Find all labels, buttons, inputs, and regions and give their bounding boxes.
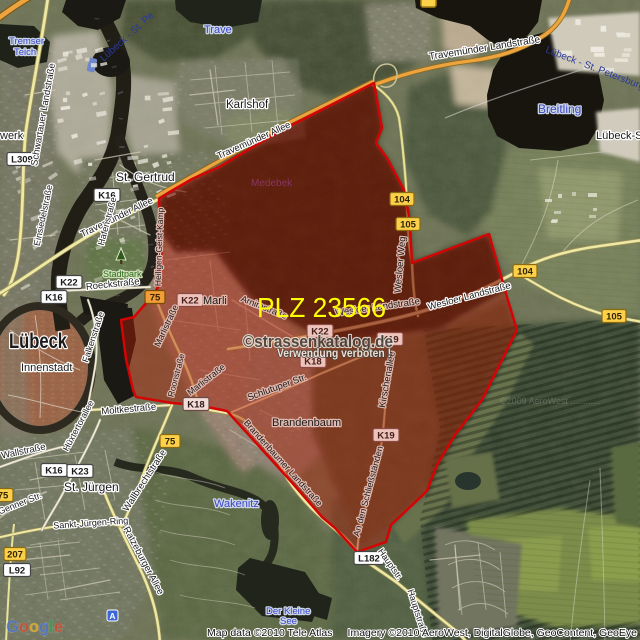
- svg-text:Lübeck-S: Lübeck-S: [596, 130, 640, 142]
- svg-text:e: e: [54, 618, 63, 636]
- svg-text:K16: K16: [45, 292, 62, 303]
- svg-text:l: l: [49, 618, 54, 636]
- svg-text:St. Jürgen: St. Jürgen: [64, 480, 119, 494]
- svg-text:St. Gertrud: St. Gertrud: [116, 170, 175, 184]
- svg-text:K23: K23: [71, 466, 88, 477]
- svg-text:g: g: [39, 618, 49, 636]
- svg-text:L182: L182: [358, 553, 380, 564]
- svg-text:K16: K16: [45, 465, 62, 476]
- svg-text:K22: K22: [60, 277, 77, 288]
- svg-text:Lübeck: Lübeck: [9, 330, 67, 353]
- svg-text:G: G: [6, 618, 19, 636]
- svg-text:o: o: [19, 618, 29, 636]
- svg-text:o: o: [29, 618, 39, 636]
- svg-text:Brandenbaum: Brandenbaum: [272, 417, 341, 429]
- svg-text:Trave: Trave: [204, 24, 232, 36]
- svg-text:Map data ©2010 Tele Atlas: Map data ©2010 Tele Atlas: [207, 627, 332, 639]
- svg-text:PLZ 23566: PLZ 23566: [257, 292, 386, 323]
- svg-text:Imagery ©2010 AeroWest, Digita: Imagery ©2010 AeroWest, DigitalGlobe, Ge…: [348, 627, 638, 639]
- svg-text:K19: K19: [377, 430, 394, 441]
- svg-text:Breitling: Breitling: [538, 102, 581, 116]
- svg-text:75: 75: [0, 490, 9, 501]
- svg-text:Verwendung verboten !: Verwendung verboten !: [277, 346, 391, 360]
- svg-text:Karlshof: Karlshof: [226, 99, 269, 111]
- svg-text:©2009 AeroWest ............: ©2009 AeroWest ............: [500, 396, 601, 406]
- svg-text:Wakenitz: Wakenitz: [214, 498, 259, 510]
- svg-text:207: 207: [7, 549, 23, 560]
- svg-text:L92: L92: [9, 565, 25, 576]
- svg-text:Marli: Marli: [203, 295, 227, 307]
- svg-text:Innenstadt: Innenstadt: [21, 362, 72, 374]
- svg-text:A: A: [109, 611, 115, 621]
- svg-text:104: 104: [517, 266, 534, 277]
- svg-text:75: 75: [165, 436, 176, 447]
- svg-text:K22: K22: [181, 295, 198, 306]
- svg-text:105: 105: [400, 219, 417, 230]
- svg-text:Tremser: Tremser: [9, 36, 44, 47]
- svg-text:Teich: Teich: [14, 47, 36, 58]
- svg-text:K18: K18: [187, 399, 204, 410]
- svg-text:Medebek: Medebek: [251, 178, 293, 189]
- svg-text:werk: werk: [0, 130, 24, 142]
- svg-text:104: 104: [394, 194, 411, 205]
- svg-text:75: 75: [150, 292, 161, 303]
- svg-text:See: See: [280, 616, 297, 627]
- svg-text:105: 105: [606, 311, 623, 322]
